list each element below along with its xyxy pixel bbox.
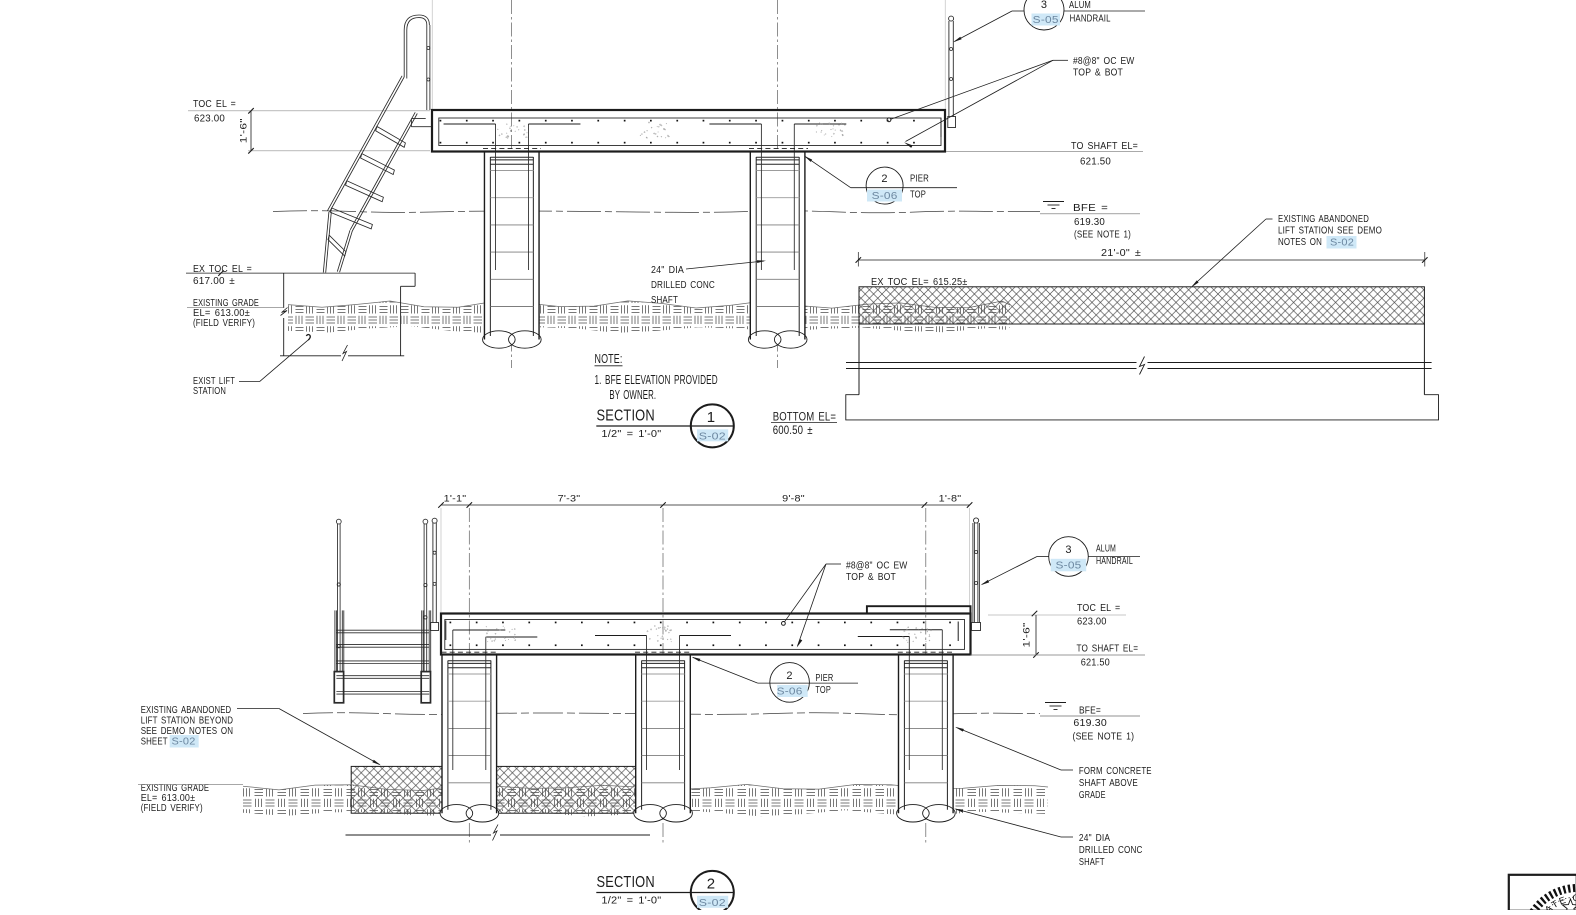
svg-text:S-05: S-05 xyxy=(1056,561,1082,572)
svg-text:SHAFT: SHAFT xyxy=(1079,857,1105,868)
svg-text:(SEE NOTE 1): (SEE NOTE 1) xyxy=(1073,732,1135,743)
svg-text:(FIELD VERIFY): (FIELD VERIFY) xyxy=(193,318,255,329)
svg-text:619.30: 619.30 xyxy=(1073,718,1107,729)
svg-text:STATION: STATION xyxy=(193,386,226,397)
svg-text:DRILLED CONC: DRILLED CONC xyxy=(651,280,715,291)
svg-text:SHEET: SHEET xyxy=(141,737,168,748)
svg-text:BOTTOM EL=: BOTTOM EL= xyxy=(773,410,836,424)
svg-text:9'-8": 9'-8" xyxy=(782,494,805,504)
svg-text:DRILLED CONC: DRILLED CONC xyxy=(1079,845,1143,856)
svg-text:SECTION: SECTION xyxy=(597,874,655,891)
svg-text:S-06: S-06 xyxy=(777,687,803,698)
svg-text:BFE =: BFE = xyxy=(1073,203,1108,214)
svg-text:EXISTING ABANDONED: EXISTING ABANDONED xyxy=(1278,214,1369,225)
svg-text:LIFT STATION BEYOND: LIFT STATION BEYOND xyxy=(141,716,234,727)
svg-text:HANDRAIL: HANDRAIL xyxy=(1070,14,1111,25)
svg-text:FORM CONCRETE: FORM CONCRETE xyxy=(1079,766,1152,777)
svg-text:NOTES ON: NOTES ON xyxy=(1278,237,1322,248)
svg-text:TOP: TOP xyxy=(910,190,926,201)
svg-text:TOP: TOP xyxy=(815,685,831,696)
svg-text:HANDRAIL: HANDRAIL xyxy=(1096,556,1133,567)
svg-text:(FIELD VERIFY): (FIELD VERIFY) xyxy=(141,803,203,814)
svg-text:623.00: 623.00 xyxy=(194,114,225,125)
svg-text:S-05: S-05 xyxy=(1033,15,1059,26)
svg-text:1/2" = 1'-0": 1/2" = 1'-0" xyxy=(601,429,661,440)
svg-text:TOC EL =: TOC EL = xyxy=(1077,603,1120,614)
svg-text:1: 1 xyxy=(707,409,716,426)
svg-text:S-02: S-02 xyxy=(699,897,726,909)
svg-text:SECTION: SECTION xyxy=(597,408,655,425)
svg-text:1'-6": 1'-6" xyxy=(239,118,249,143)
svg-text:BY OWNER.: BY OWNER. xyxy=(609,388,656,402)
svg-text:GRADE: GRADE xyxy=(1079,790,1106,801)
svg-text:21'-0" ±: 21'-0" ± xyxy=(1101,248,1141,259)
svg-text:621.50: 621.50 xyxy=(1080,157,1111,168)
svg-text:TOP & BOT: TOP & BOT xyxy=(846,572,896,583)
svg-text:BFE=: BFE= xyxy=(1079,706,1101,717)
svg-text:617.00 ±: 617.00 ± xyxy=(193,276,235,287)
svg-text:2: 2 xyxy=(786,670,792,682)
svg-text:#8@8" OC EW: #8@8" OC EW xyxy=(1073,56,1135,67)
svg-text:621.50: 621.50 xyxy=(1081,658,1111,669)
svg-text:PIER: PIER xyxy=(815,673,833,684)
svg-text:TOC EL =: TOC EL = xyxy=(193,99,236,110)
svg-text:1'-8": 1'-8" xyxy=(939,494,962,504)
svg-text:S-06: S-06 xyxy=(872,191,898,202)
svg-text:S-02: S-02 xyxy=(172,737,196,748)
svg-text:(SEE NOTE 1): (SEE NOTE 1) xyxy=(1074,230,1131,241)
svg-text:2: 2 xyxy=(881,173,887,185)
svg-text:3: 3 xyxy=(1041,0,1047,11)
svg-text:ALUM: ALUM xyxy=(1069,0,1091,11)
svg-text:3: 3 xyxy=(1065,544,1071,556)
svg-text:24" DIA: 24" DIA xyxy=(651,265,684,276)
svg-text:ALUM: ALUM xyxy=(1096,544,1116,555)
svg-text:NOTE:: NOTE: xyxy=(595,352,623,366)
svg-text:EXISTING ABANDONED: EXISTING ABANDONED xyxy=(141,705,232,716)
svg-text:PIER: PIER xyxy=(910,174,929,185)
svg-text:623.00: 623.00 xyxy=(1077,617,1107,628)
svg-text:600.50 ±: 600.50 ± xyxy=(773,423,813,437)
svg-text:1/2" = 1'-0": 1/2" = 1'-0" xyxy=(601,896,661,907)
svg-text:7'-3": 7'-3" xyxy=(558,494,581,504)
svg-text:LIFT STATION SEE DEMO: LIFT STATION SEE DEMO xyxy=(1278,226,1382,237)
svg-text:SHAFT ABOVE: SHAFT ABOVE xyxy=(1079,778,1138,789)
svg-text:S-02: S-02 xyxy=(1330,238,1354,249)
svg-text:S-02: S-02 xyxy=(699,430,726,442)
svg-text:TO SHAFT EL=: TO SHAFT EL= xyxy=(1071,141,1138,152)
svg-text:#8@8" OC EW: #8@8" OC EW xyxy=(846,561,908,572)
svg-text:2: 2 xyxy=(707,876,716,893)
svg-text:24" DIA: 24" DIA xyxy=(1079,833,1111,844)
svg-text:1'-1": 1'-1" xyxy=(444,494,467,504)
svg-text:619.30: 619.30 xyxy=(1074,217,1105,228)
svg-text:1'-6": 1'-6" xyxy=(1022,623,1032,648)
svg-text:SHAFT: SHAFT xyxy=(651,295,678,306)
svg-text:1. BFE ELEVATION PROVIDED: 1. BFE ELEVATION PROVIDED xyxy=(595,373,718,387)
svg-text:TO SHAFT EL=: TO SHAFT EL= xyxy=(1077,644,1139,655)
svg-text:TOP & BOT: TOP & BOT xyxy=(1073,68,1123,79)
